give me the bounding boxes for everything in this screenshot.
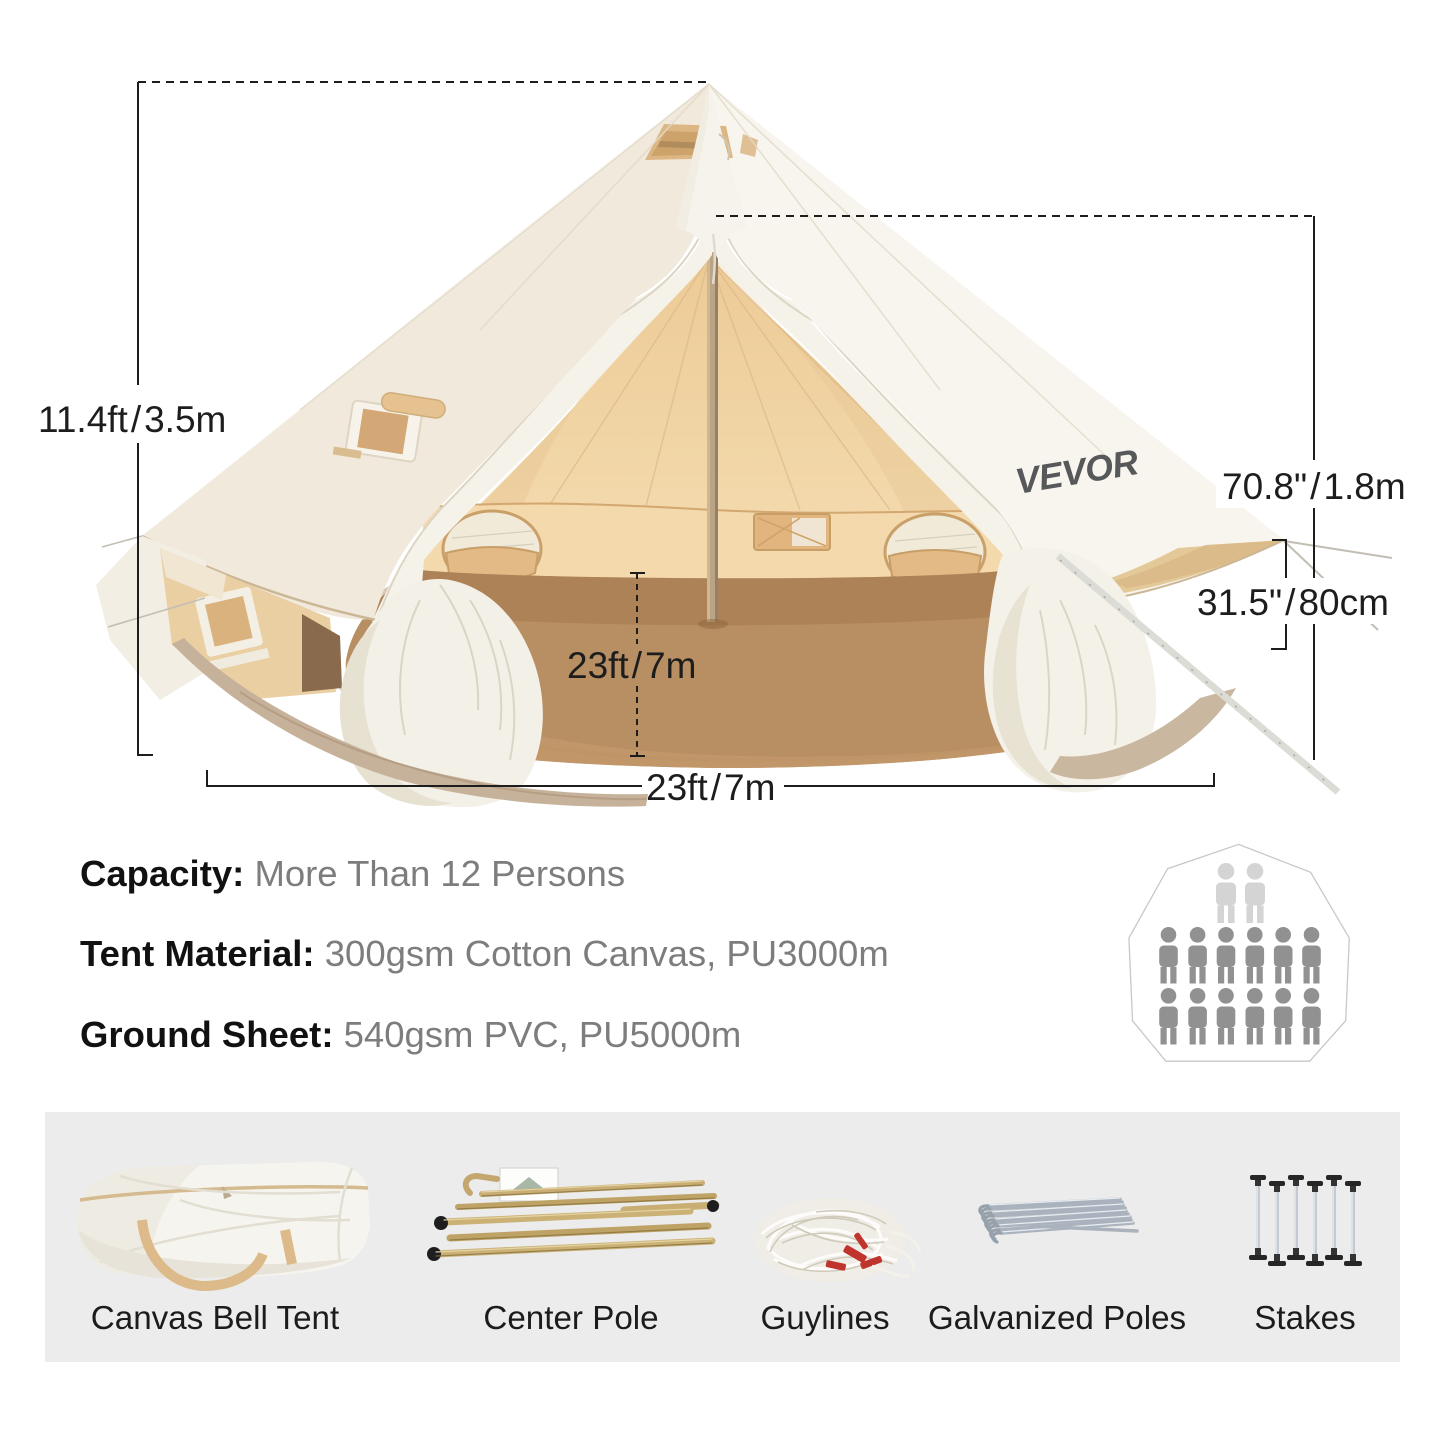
svg-text:23ft/7m: 23ft/7m xyxy=(567,645,696,686)
svg-text:Galvanized Poles: Galvanized Poles xyxy=(928,1300,1186,1337)
svg-text:Tent Material: 300gsm Cotton C: Tent Material: 300gsm Cotton Canvas, PU3… xyxy=(80,933,889,974)
svg-text:Center Pole: Center Pole xyxy=(483,1300,658,1337)
svg-text:Guylines: Guylines xyxy=(760,1300,889,1337)
svg-text:23ft/7m: 23ft/7m xyxy=(646,767,775,808)
svg-text:Capacity: More Than 12 Persons: Capacity: More Than 12 Persons xyxy=(80,853,625,894)
svg-text:Stakes: Stakes xyxy=(1254,1300,1355,1337)
svg-text:70.8"/1.8m: 70.8"/1.8m xyxy=(1222,466,1406,507)
svg-text:31.5"/80cm: 31.5"/80cm xyxy=(1197,582,1389,623)
svg-text:Canvas Bell Tent: Canvas Bell Tent xyxy=(91,1300,339,1337)
svg-text:Ground Sheet: 540gsm PVC, PU50: Ground Sheet: 540gsm PVC, PU5000m xyxy=(80,1014,741,1055)
svg-text:11.4ft/3.5m: 11.4ft/3.5m xyxy=(38,399,226,440)
